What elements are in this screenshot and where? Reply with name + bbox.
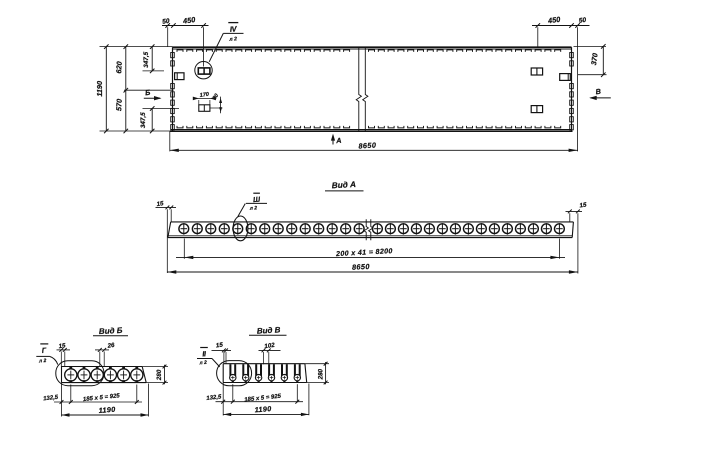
svg-text:570: 570 bbox=[114, 99, 123, 111]
svg-text:л 2: л 2 bbox=[249, 205, 258, 212]
svg-text:50: 50 bbox=[578, 17, 587, 25]
svg-text:В: В bbox=[595, 87, 601, 97]
svg-text:А: А bbox=[335, 136, 342, 145]
svg-text:8650: 8650 bbox=[352, 262, 370, 272]
svg-text:620: 620 bbox=[114, 61, 123, 73]
svg-text:л 2: л 2 bbox=[198, 360, 207, 367]
svg-text:Вид Б: Вид Б bbox=[99, 326, 123, 336]
svg-text:л 2: л 2 bbox=[38, 358, 47, 365]
svg-text:347,5: 347,5 bbox=[140, 112, 147, 128]
svg-text:280: 280 bbox=[317, 368, 324, 380]
svg-text:1190: 1190 bbox=[254, 404, 272, 414]
svg-text:370: 370 bbox=[589, 52, 600, 65]
svg-text:Б: Б bbox=[145, 88, 151, 97]
svg-text:Вид А: Вид А bbox=[332, 180, 357, 190]
svg-text:1190: 1190 bbox=[95, 81, 104, 97]
svg-text:л 2: л 2 bbox=[228, 36, 237, 43]
svg-text:26: 26 bbox=[106, 342, 115, 350]
svg-text:50: 50 bbox=[162, 18, 171, 26]
svg-text:8650: 8650 bbox=[358, 140, 376, 150]
svg-text:347,5: 347,5 bbox=[143, 51, 150, 67]
svg-text:280: 280 bbox=[156, 369, 163, 381]
svg-text:1190: 1190 bbox=[98, 405, 116, 415]
svg-text:Вид В: Вид В bbox=[257, 325, 281, 335]
